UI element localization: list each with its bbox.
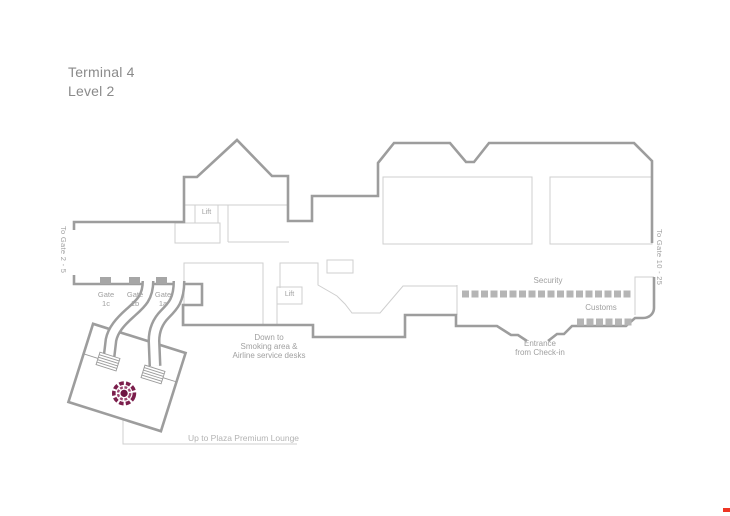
gate-1c-label: Gate 1c: [91, 290, 121, 308]
terminal-name: Terminal 4: [68, 63, 135, 82]
up-to-plaza-premium-lounge-label: Up to Plaza Premium Lounge: [188, 434, 299, 444]
entrance-label: Entrance from Check-in: [500, 340, 580, 358]
to-gate-2-5-label: To Gate 2 - 5: [59, 226, 68, 284]
gate-stand-squares: [100, 277, 167, 284]
security-checkpoint-squares: [462, 291, 631, 298]
customs-label: Customs: [571, 304, 631, 313]
upper-concourse-wall: [74, 140, 652, 243]
to-gate-10-25-label: To Gate 10 - 25: [655, 229, 664, 293]
terminal-map-page: Terminal 4 Level 2 To Gate 2 - 5 To Gate…: [0, 0, 730, 516]
down-to-smoking-label: Down to Smoking area & Airline service d…: [219, 333, 319, 360]
gate-1b-label: Gate 1b: [120, 290, 150, 308]
plaza-premium-lounge-area: [68, 324, 185, 431]
gate-1a-label: Gate 1a: [148, 290, 178, 308]
customs-checkpoint-squares: [577, 319, 632, 326]
lift-1-label: Lift: [195, 209, 218, 217]
map-title: Terminal 4 Level 2: [68, 63, 135, 101]
level-name: Level 2: [68, 82, 135, 101]
lift-2-label: Lift: [277, 291, 302, 299]
corner-red-mark: [723, 508, 730, 512]
security-label: Security: [518, 277, 578, 286]
